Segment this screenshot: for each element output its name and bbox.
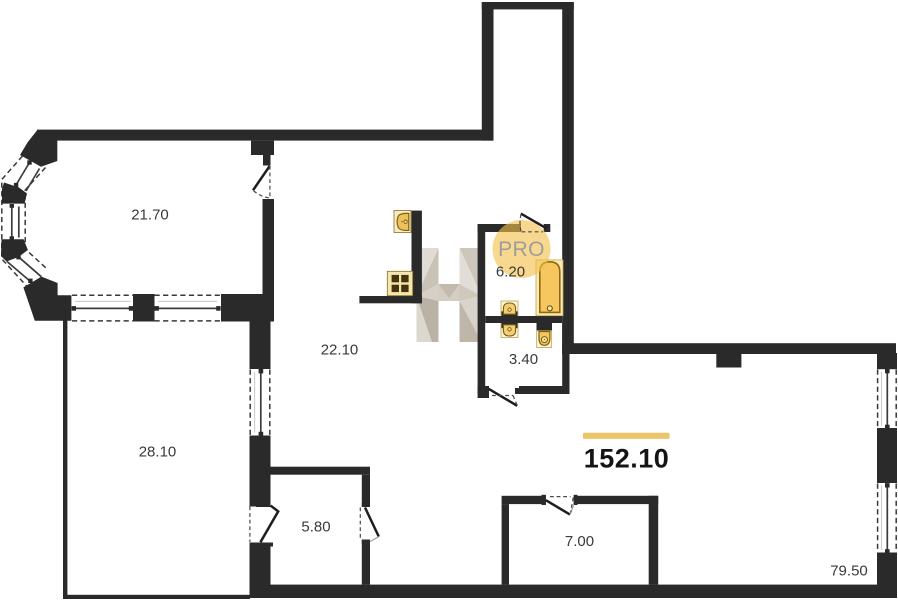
svg-text:3.40: 3.40 xyxy=(509,351,538,368)
svg-text:21.70: 21.70 xyxy=(131,207,169,224)
svg-text:PRO: PRO xyxy=(498,238,545,261)
svg-text:28.10: 28.10 xyxy=(139,444,177,461)
svg-text:6.20: 6.20 xyxy=(496,264,525,281)
svg-text:5.80: 5.80 xyxy=(301,519,330,536)
svg-text:152.10: 152.10 xyxy=(584,444,670,474)
svg-text:22.10: 22.10 xyxy=(321,342,359,359)
svg-text:7.00: 7.00 xyxy=(565,533,594,550)
svg-text:79.50: 79.50 xyxy=(830,563,868,580)
